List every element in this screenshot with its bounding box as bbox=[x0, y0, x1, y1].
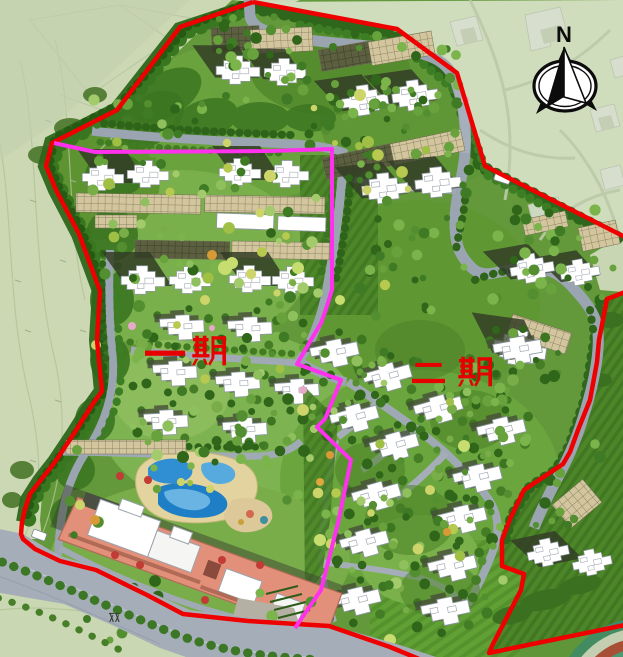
svg-text:N: N bbox=[556, 22, 572, 47]
